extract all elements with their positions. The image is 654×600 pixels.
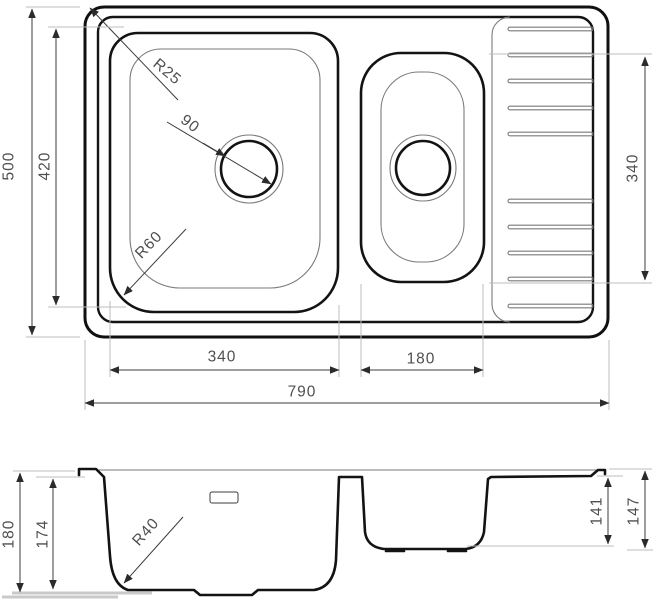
technical-drawing-canvas: R25 90 R60 500 420 340 340	[0, 0, 654, 600]
main-bowl-outline	[110, 33, 338, 312]
overflow-slot	[210, 492, 238, 503]
dim-main-bowl-height-label: 420	[37, 152, 54, 181]
dim-small-bowl-overall-depth-label: 147	[626, 497, 643, 526]
label-corner-radius: R25	[149, 55, 184, 88]
drainboard-ribs	[508, 27, 593, 308]
label-drain-diameter: 90	[177, 111, 203, 136]
sink-rim-inner-edge	[98, 17, 593, 322]
top-view: R25 90 R60 500 420 340 340	[1, 7, 653, 410]
label-bowl-radius: R60	[132, 228, 166, 262]
small-drain-ring	[390, 135, 456, 201]
small-bowl-inner-outline	[381, 72, 464, 262]
dim-small-bowl-depth-label: 141	[589, 497, 606, 526]
dim-main-bowl-width-label: 340	[208, 349, 237, 366]
section-view: R40 180 174 141 147	[1, 469, 654, 597]
label-bottom-radius: R40	[129, 515, 163, 550]
dim-small-bowl-width-label: 180	[407, 351, 436, 368]
drainboard-boundary	[492, 17, 510, 322]
main-drain-ring	[215, 135, 283, 203]
section-extension-lines	[2, 469, 653, 597]
small-bowl-outline	[361, 53, 484, 282]
dim-overall-width-label: 790	[288, 384, 317, 401]
dim-drainer-span-label: 340	[625, 154, 642, 183]
small-drain-hole	[396, 141, 450, 195]
dim-overall-height-label: 500	[1, 152, 18, 181]
section-profile	[79, 469, 605, 595]
dim-overall-depth-label: 180	[1, 520, 18, 549]
main-bowl-inner-outline	[130, 49, 320, 288]
dim-main-bowl-depth-label: 174	[35, 520, 52, 549]
main-drain-hole	[221, 141, 277, 197]
sink-technical-drawing: R25 90 R60 500 420 340 340	[0, 0, 654, 600]
callout-r25-leader	[90, 8, 178, 100]
